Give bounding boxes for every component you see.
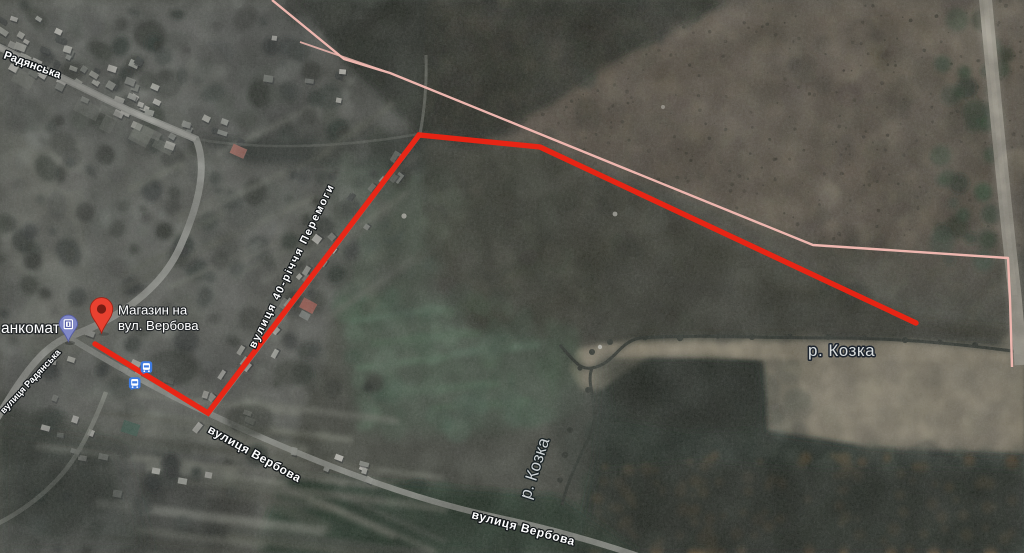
svg-text:анкомат: анкомат (1, 320, 60, 337)
svg-text:р. Козка: р. Козка (808, 341, 875, 360)
svg-text:вул. Вербова: вул. Вербова (118, 318, 199, 333)
svg-text:Магазин на: Магазин на (118, 303, 188, 318)
